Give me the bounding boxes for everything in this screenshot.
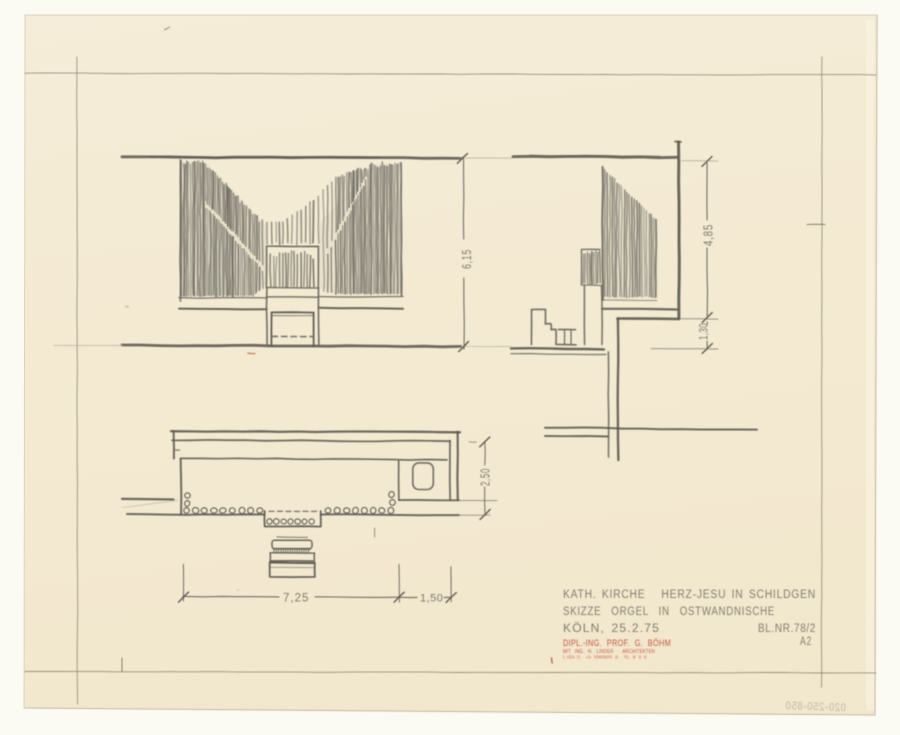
svg-text:BL.NR.78/2: BL.NR.78/2 [758,621,816,635]
svg-text:DIPL.-ING. PROF. G. BÖHM: DIPL.-ING. PROF. G. BÖHM [563,638,671,648]
svg-text:A2: A2 [800,636,812,648]
svg-text:KATH. KIRCHE HERZ-JESU IN SC: KATH. KIRCHE HERZ-JESU IN SCHILDGEN [563,587,816,601]
svg-text:KÖLN, 25.2.75: KÖLN, 25.2.75 [563,621,660,635]
svg-text:1,50: 1,50 [420,593,443,605]
svg-text:2,50: 2,50 [479,468,493,486]
svg-text:5 KÖLN 51 · A.D. RÖMERBERG 25: 5 KÖLN 51 · A.D. RÖMERBERG 25 · TEL. 38 … [563,654,647,660]
svg-text:1,30: 1,30 [699,323,711,340]
svg-text:7,25: 7,25 [283,593,309,605]
svg-text:4,85: 4,85 [701,224,716,246]
svg-text:020-250-850: 020-250-850 [785,700,846,714]
svg-text:SKIZZE ORGEL IN OSTWANDNISC: SKIZZE ORGEL IN OSTWANDNISCHE [563,604,775,618]
svg-text:6,15: 6,15 [459,249,474,269]
